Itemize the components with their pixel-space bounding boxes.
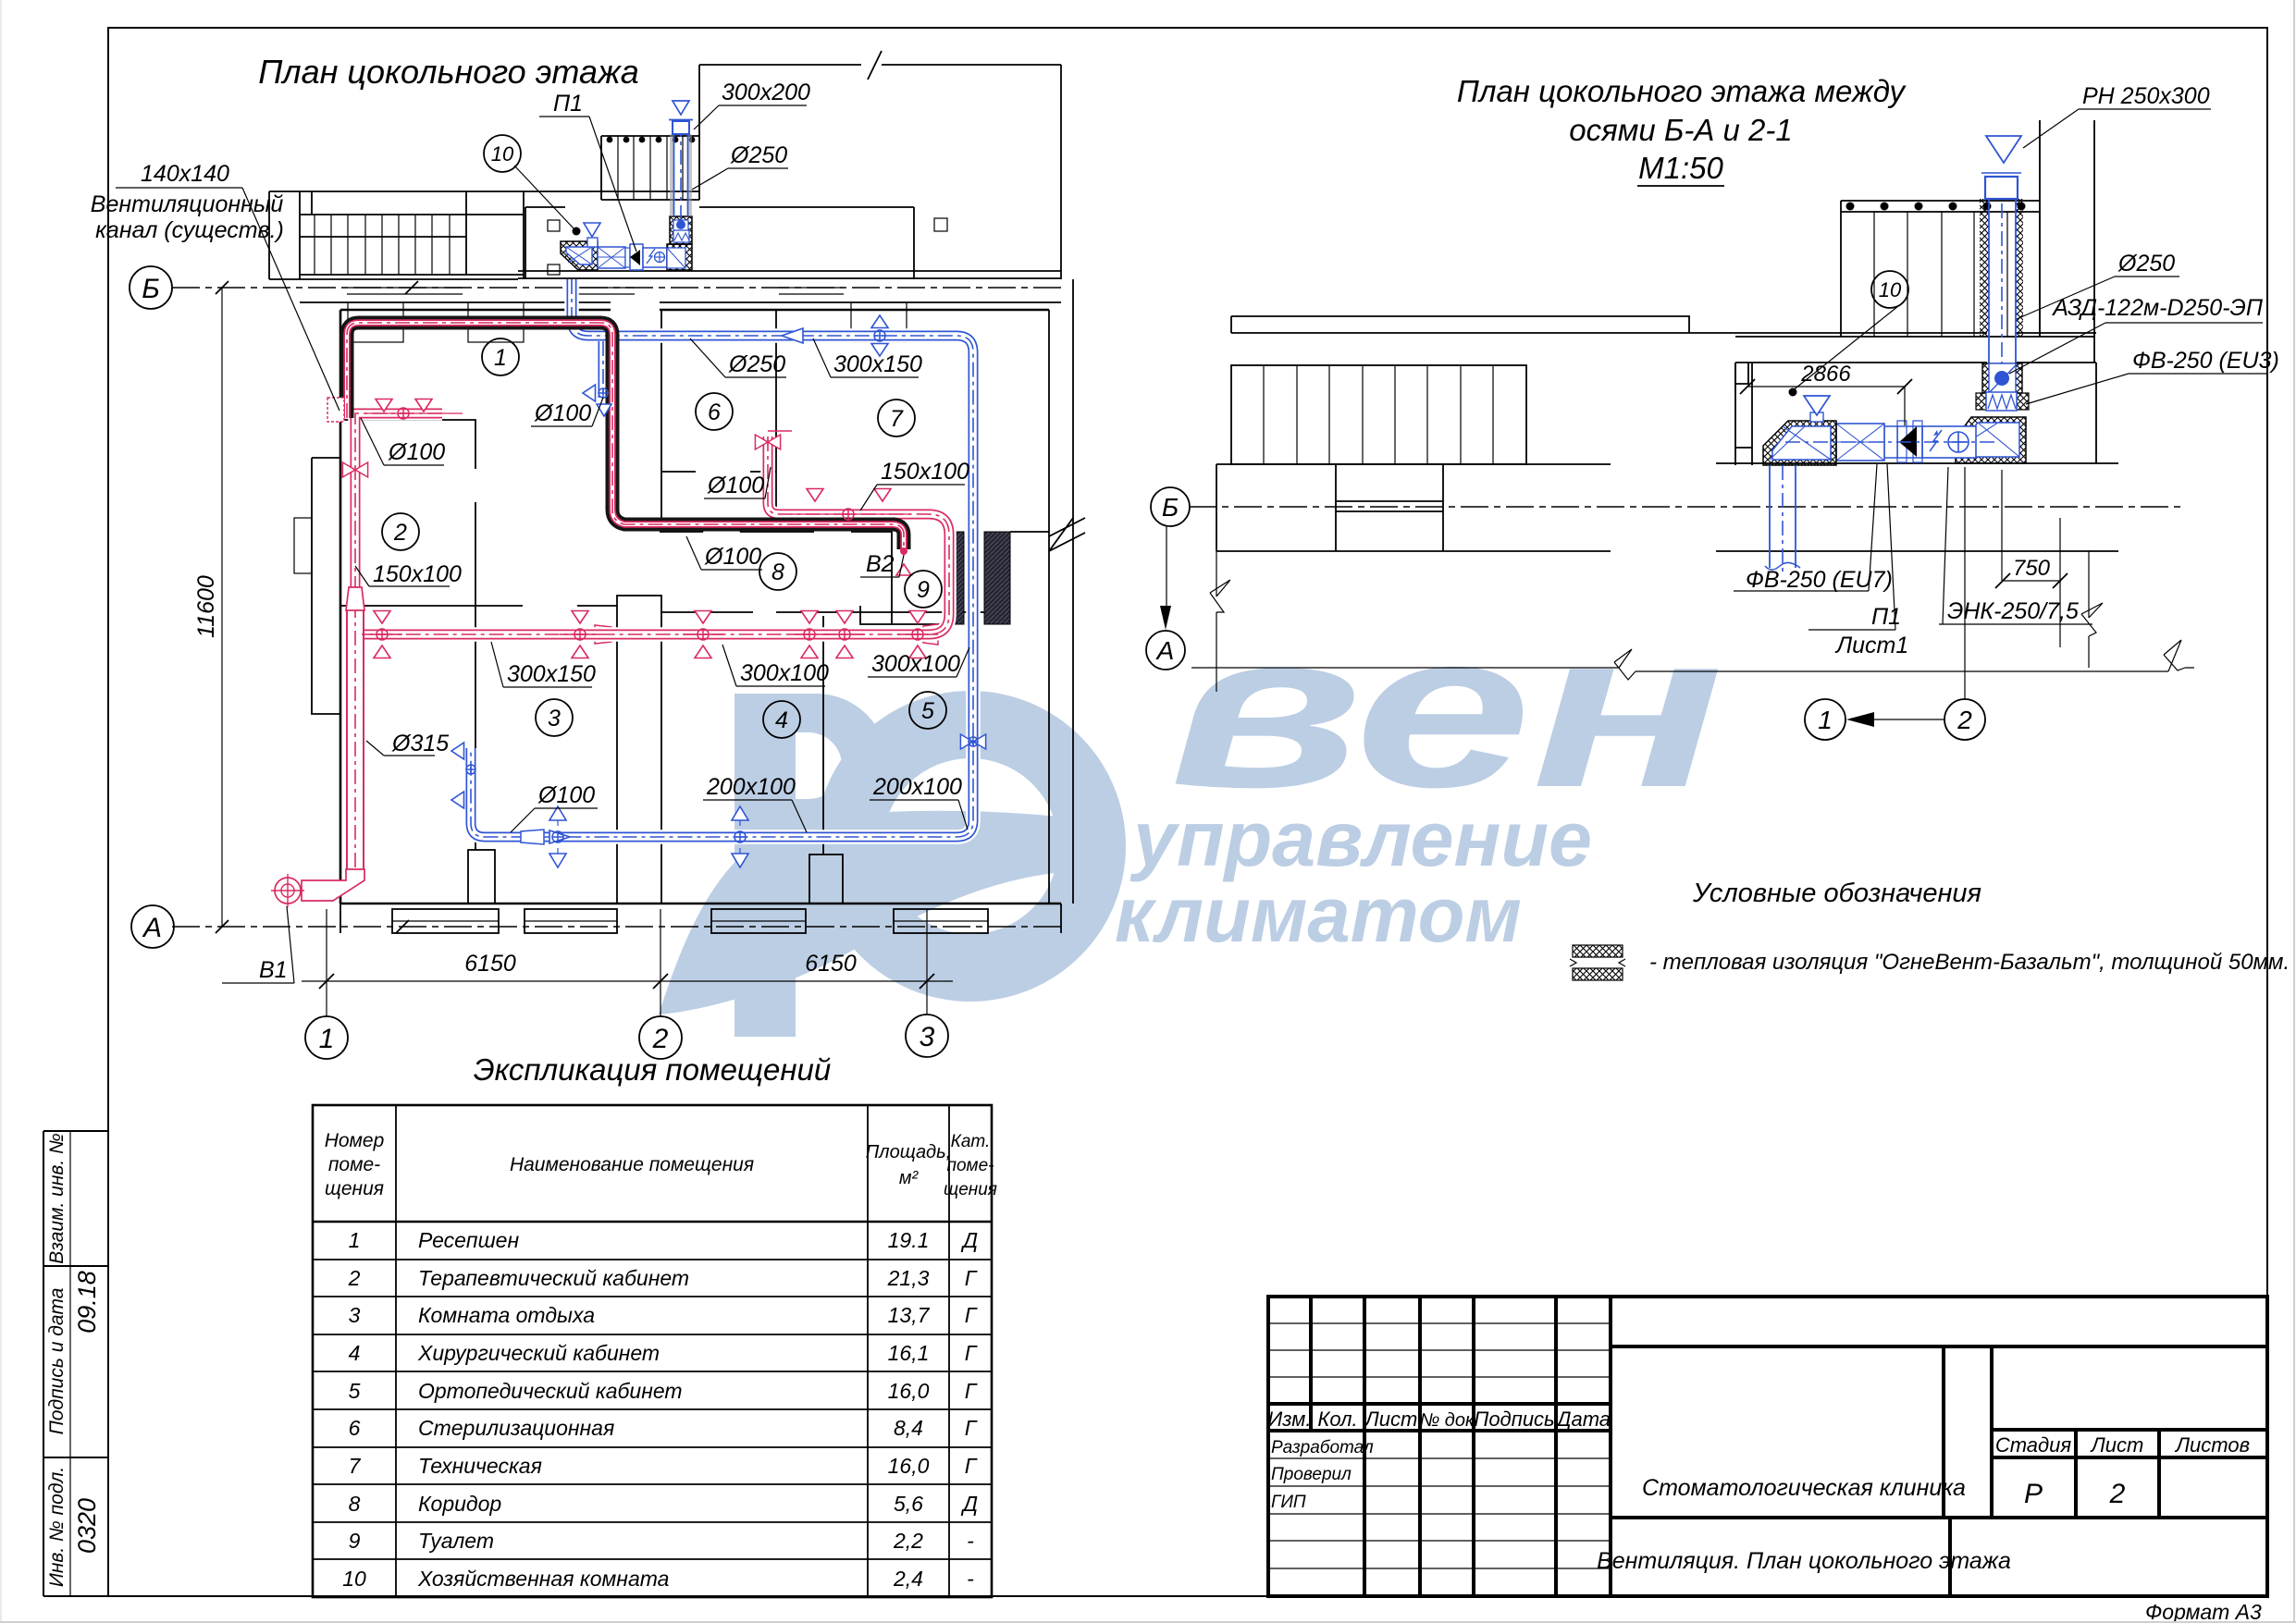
svg-text:Туалет: Туалет <box>418 1529 494 1553</box>
svg-text:5: 5 <box>349 1379 361 1403</box>
svg-text:Стоматологическая клиника: Стоматологическая клиника <box>1642 1475 1966 1501</box>
svg-text:Ø100: Ø100 <box>388 439 445 465</box>
svg-text:6150: 6150 <box>464 951 516 977</box>
svg-text:ГИП: ГИП <box>1271 1493 1306 1512</box>
svg-text:Ø100: Ø100 <box>537 782 595 808</box>
svg-text:щения: щения <box>325 1178 384 1199</box>
svg-text:Р: Р <box>2024 1479 2043 1509</box>
svg-text:150x100: 150x100 <box>881 459 969 485</box>
svg-text:Изм.: Изм. <box>1268 1408 1312 1431</box>
svg-text:21,3: 21,3 <box>887 1266 930 1290</box>
svg-text:План цокольного этажа: План цокольного этажа <box>258 53 639 91</box>
svg-text:3: 3 <box>548 706 561 732</box>
svg-text:ФВ-250 (EU3): ФВ-250 (EU3) <box>2132 348 2279 374</box>
svg-text:1: 1 <box>1818 706 1833 734</box>
svg-text:6: 6 <box>708 400 721 425</box>
svg-text:Проверил: Проверил <box>1271 1465 1352 1484</box>
svg-text:План цокольного этажа между: План цокольного этажа между <box>1457 74 1907 108</box>
svg-text:7: 7 <box>890 406 904 432</box>
svg-text:Хирургический кабинет: Хирургический кабинет <box>417 1341 660 1365</box>
svg-text:1: 1 <box>319 1024 335 1054</box>
svg-text:м²: м² <box>899 1168 920 1188</box>
svg-text:Лист1: Лист1 <box>1834 633 1908 658</box>
svg-text:Вентиляция. План цокольного эт: Вентиляция. План цокольного этажа <box>1597 1548 2011 1574</box>
svg-text:Коридор: Коридор <box>418 1492 501 1516</box>
svg-text:Условные обозначения: Условные обозначения <box>1692 879 1981 908</box>
svg-text:Формат А3: Формат А3 <box>2145 1600 2262 1623</box>
svg-text:Вентиляционный: Вентиляционный <box>91 191 284 217</box>
svg-text:3: 3 <box>920 1022 935 1052</box>
svg-text:750: 750 <box>2013 556 2051 581</box>
svg-text:16,0: 16,0 <box>888 1379 930 1403</box>
svg-text:Ортопедический кабинет: Ортопедический кабинет <box>418 1379 683 1403</box>
svg-text:140x140: 140x140 <box>141 161 229 187</box>
svg-text:Техническая: Техническая <box>418 1454 542 1478</box>
svg-text:Г: Г <box>965 1266 978 1290</box>
svg-text:Разработал: Разработал <box>1271 1438 1374 1457</box>
svg-text:Подпись и дата: Подпись и дата <box>46 1288 68 1435</box>
svg-text:Листов: Листов <box>2174 1433 2250 1457</box>
svg-text:Комната отдыха: Комната отдыха <box>418 1303 595 1327</box>
svg-text:Г: Г <box>965 1303 978 1327</box>
svg-text:300x100: 300x100 <box>740 660 829 686</box>
svg-text:Подпись: Подпись <box>1474 1408 1554 1431</box>
svg-text:Б: Б <box>142 274 160 304</box>
svg-text:2: 2 <box>2109 1479 2126 1509</box>
svg-text:А: А <box>1155 636 1175 665</box>
svg-text:10: 10 <box>342 1567 366 1591</box>
svg-text:300x100: 300x100 <box>871 651 960 677</box>
svg-text:Ø250: Ø250 <box>730 142 787 168</box>
svg-text:10: 10 <box>1879 278 1902 301</box>
svg-text:Хозяйственная комната: Хозяйственная комната <box>417 1567 669 1591</box>
svg-text:16,0: 16,0 <box>888 1454 930 1478</box>
svg-text:В1: В1 <box>259 957 288 983</box>
svg-text:150x100: 150x100 <box>373 561 462 587</box>
svg-text:осями Б-А и 2-1: осями Б-А и 2-1 <box>1569 113 1793 147</box>
svg-text:Лист: Лист <box>1364 1408 1418 1431</box>
svg-text:3: 3 <box>349 1303 361 1327</box>
svg-text:200x100: 200x100 <box>706 774 796 800</box>
svg-text:8: 8 <box>349 1492 361 1516</box>
svg-text:Терапевтический кабинет: Терапевтический кабинет <box>418 1266 689 1290</box>
svg-text:2866: 2866 <box>1800 362 1851 387</box>
svg-text:АЗД-122м-D250-ЭП: АЗД-122м-D250-ЭП <box>2051 295 2264 321</box>
svg-text:1: 1 <box>494 345 507 371</box>
svg-text:0320: 0320 <box>73 1498 101 1554</box>
svg-text:Стерилизационная: Стерилизационная <box>418 1416 614 1440</box>
svg-text:4: 4 <box>349 1341 361 1365</box>
svg-text:Г: Г <box>965 1379 978 1403</box>
svg-text:Ø100: Ø100 <box>534 400 591 426</box>
svg-text:09.18: 09.18 <box>73 1271 101 1334</box>
svg-text:2,4: 2,4 <box>893 1567 923 1591</box>
svg-text:Стадия: Стадия <box>1995 1433 2072 1457</box>
svg-text:Г: Г <box>965 1341 978 1365</box>
svg-text:Дата: Дата <box>1554 1408 1611 1431</box>
svg-text:Ø100: Ø100 <box>707 473 764 498</box>
svg-text:А: А <box>142 913 162 943</box>
svg-text:Наименование помещения: Наименование помещения <box>510 1154 754 1175</box>
svg-text:8,4: 8,4 <box>894 1416 923 1440</box>
svg-text:Ø250: Ø250 <box>2117 251 2175 277</box>
svg-text:климатом: климатом <box>1115 871 1522 958</box>
svg-text:П1: П1 <box>553 91 583 117</box>
svg-text:Кол.: Кол. <box>1317 1408 1357 1431</box>
svg-text:5,6: 5,6 <box>894 1492 923 1516</box>
svg-text:2: 2 <box>348 1266 361 1290</box>
svg-text:Д: Д <box>960 1492 978 1516</box>
svg-text:8: 8 <box>772 559 784 585</box>
svg-text:-: - <box>967 1567 974 1591</box>
svg-text:4: 4 <box>775 707 788 733</box>
svg-text:2,2: 2,2 <box>893 1529 923 1553</box>
svg-text:Г: Г <box>965 1416 978 1440</box>
svg-text:№ док: № док <box>1420 1410 1475 1431</box>
svg-text:9: 9 <box>349 1529 361 1553</box>
svg-text:9: 9 <box>917 577 930 603</box>
svg-text:300x150: 300x150 <box>833 351 922 377</box>
svg-text:7: 7 <box>349 1454 362 1478</box>
svg-text:Ресепшен: Ресепшен <box>418 1228 519 1252</box>
svg-text:13,7: 13,7 <box>888 1303 931 1327</box>
svg-text:Инв. № подл.: Инв. № подл. <box>46 1467 68 1587</box>
svg-text:РН 250x300: РН 250x300 <box>2082 83 2210 109</box>
svg-text:Д: Д <box>960 1228 978 1252</box>
svg-text:- тепловая изоляция "ОгнеВент-: - тепловая изоляция "ОгнеВент-Базальт", … <box>1649 950 2290 975</box>
svg-text:11600: 11600 <box>193 575 219 638</box>
svg-text:Площадь,: Площадь, <box>866 1142 951 1162</box>
svg-text:Ø100: Ø100 <box>704 544 761 570</box>
svg-text:Б: Б <box>1162 493 1179 522</box>
svg-text:поме-: поме- <box>947 1156 994 1175</box>
svg-text:200x100: 200x100 <box>872 774 962 800</box>
svg-text:6150: 6150 <box>805 951 857 977</box>
svg-text:16,1: 16,1 <box>888 1341 930 1365</box>
svg-text:Ø315: Ø315 <box>391 731 449 756</box>
svg-text:2: 2 <box>652 1024 669 1054</box>
svg-text:Взаим. инв. №: Взаим. инв. № <box>46 1133 68 1264</box>
svg-text:Лист: Лист <box>2090 1433 2144 1457</box>
svg-text:2: 2 <box>1957 706 1972 734</box>
svg-text:2: 2 <box>393 520 407 546</box>
svg-text:В2: В2 <box>866 551 895 577</box>
svg-text:19.1: 19.1 <box>888 1228 930 1252</box>
svg-text:Г: Г <box>965 1454 978 1478</box>
svg-text:10: 10 <box>491 142 514 166</box>
svg-text:Номер: Номер <box>325 1130 385 1151</box>
svg-text:Кат.: Кат. <box>951 1132 991 1151</box>
svg-text:1: 1 <box>349 1228 361 1252</box>
svg-text:управление: управление <box>1129 795 1592 882</box>
svg-text:П1: П1 <box>1871 604 1901 630</box>
svg-text:5: 5 <box>921 698 934 724</box>
svg-text:поме-: поме- <box>328 1154 380 1175</box>
svg-text:-: - <box>967 1529 974 1553</box>
svg-text:300x150: 300x150 <box>507 661 596 687</box>
svg-text:300x200: 300x200 <box>722 80 810 105</box>
svg-text:ЭНК-250/7,5: ЭНК-250/7,5 <box>1947 598 2079 624</box>
svg-text:М1:50: М1:50 <box>1638 151 1723 185</box>
svg-text:канал (существ.): канал (существ.) <box>95 217 284 243</box>
svg-text:6: 6 <box>349 1416 361 1440</box>
svg-text:Ø250: Ø250 <box>728 351 785 377</box>
svg-text:щения: щения <box>944 1180 997 1199</box>
